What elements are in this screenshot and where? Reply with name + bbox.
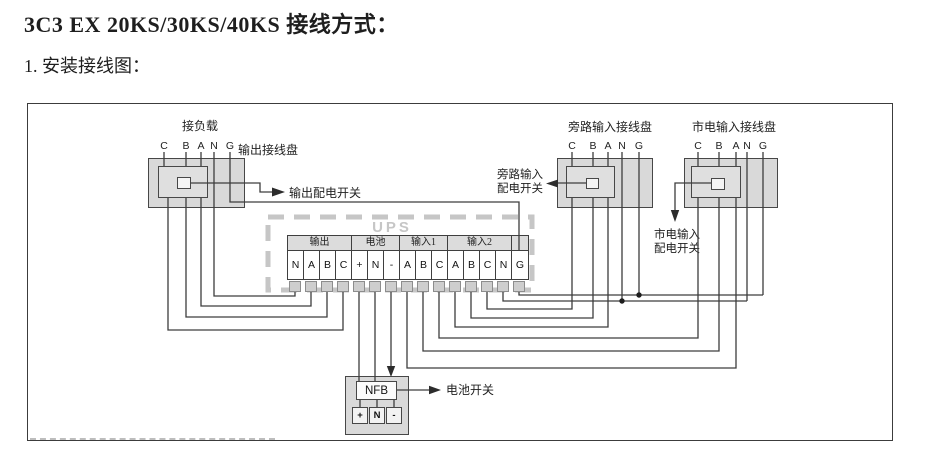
ups-strip-lug-pads: [287, 281, 527, 292]
mains-terminal-c: C: [694, 141, 702, 152]
bypass-terminal-b: B: [589, 141, 596, 152]
ups-out-c: C: [336, 251, 352, 279]
ups-bat-plus: +: [352, 251, 368, 279]
output-terminal-b: B: [182, 141, 189, 152]
manual-page: 3C3 EX 20KS/30KS/40KS 接线方式： 1. 安装接线图： UP…: [0, 0, 938, 458]
ups-in2-c: C: [480, 251, 496, 279]
ups-group-battery: 电池: [352, 236, 400, 250]
load-label: 接负载: [182, 120, 218, 134]
ups-ground: G: [512, 251, 528, 279]
mains-switch-label: 市电输入 配电开关: [652, 229, 702, 256]
output-terminal-a: A: [197, 141, 204, 152]
ups-terminal-strip: 输出 电池 输入1 输入2 N A B C + N - A B C A B C …: [287, 235, 529, 280]
ups-bat-n: N: [368, 251, 384, 279]
ups-strip-terminal-row: N A B C + N - A B C A B C N G: [288, 251, 528, 279]
output-switch-label: 输出配电开关: [289, 187, 361, 201]
output-breaker-symbol: [177, 177, 191, 189]
ups-in1-a: A: [400, 251, 416, 279]
ups-in1-b: B: [416, 251, 432, 279]
watermark-remnant: [30, 438, 275, 440]
bypass-terminal-a: A: [604, 141, 611, 152]
mains-block-name: 市电输入接线盘: [692, 121, 776, 135]
ups-label: UPS: [372, 219, 412, 236]
ups-group-output: 输出: [288, 236, 352, 250]
bypass-terminal-c: C: [568, 141, 576, 152]
ups-group-input1: 输入1: [400, 236, 448, 250]
ups-out-n: N: [288, 251, 304, 279]
output-block-name: 输出接线盘: [238, 144, 298, 158]
bypass-breaker-symbol: [586, 178, 599, 189]
output-terminal-n: N: [210, 141, 218, 152]
bypass-terminal-g: G: [635, 141, 643, 152]
nfb-label-box: NFB: [356, 381, 397, 400]
ups-group-input2: 输入2: [448, 236, 512, 250]
battery-switch-label: 电池开关: [446, 384, 494, 398]
output-terminal-c: C: [160, 141, 168, 152]
mains-breaker-symbol: [711, 178, 725, 190]
bypass-block-name: 旁路输入接线盘: [568, 121, 652, 135]
ups-out-a: A: [304, 251, 320, 279]
ups-in2-b: B: [464, 251, 480, 279]
mains-terminal-a: A: [732, 141, 739, 152]
nfb-terminal-n: N: [369, 407, 385, 424]
nfb-terminal-minus: -: [386, 407, 402, 424]
mains-terminal-b: B: [715, 141, 722, 152]
mains-terminal-g: G: [759, 141, 767, 152]
ups-bat-minus: -: [384, 251, 400, 279]
nfb-terminal-plus: +: [352, 407, 368, 424]
output-terminal-g: G: [226, 141, 234, 152]
bypass-switch-label: 旁路输入 配电开关: [496, 169, 544, 196]
page-title: 3C3 EX 20KS/30KS/40KS 接线方式：: [24, 7, 399, 39]
ups-in2-n: N: [496, 251, 512, 279]
ups-in1-c: C: [432, 251, 448, 279]
ups-group-ground-blank: [512, 236, 527, 250]
ups-out-b: B: [320, 251, 336, 279]
ups-strip-header-row: 输出 电池 输入1 输入2: [288, 236, 528, 251]
ups-in2-a: A: [448, 251, 464, 279]
section-heading: 1. 安装接线图：: [24, 52, 150, 78]
bypass-terminal-n: N: [618, 141, 626, 152]
mains-terminal-n: N: [743, 141, 751, 152]
